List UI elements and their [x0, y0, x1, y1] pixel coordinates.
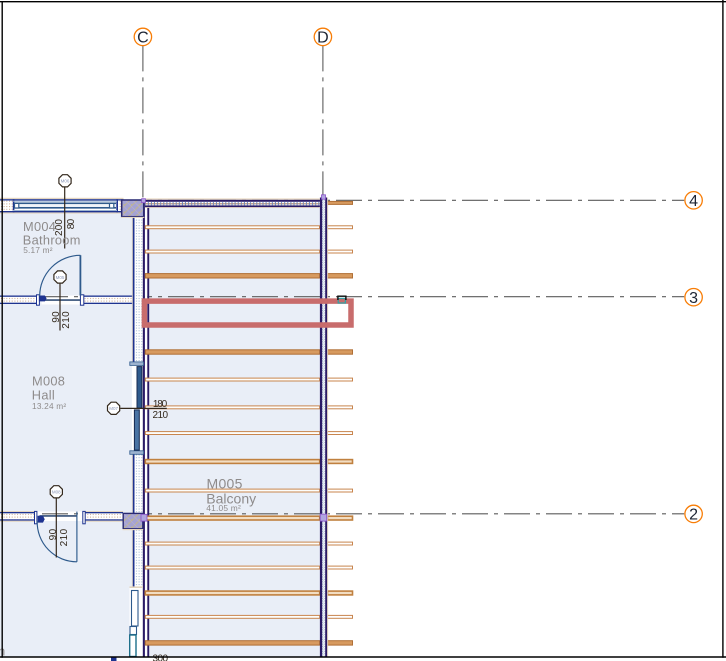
svg-text:210: 210 — [153, 410, 169, 421]
svg-text:210: 210 — [61, 311, 72, 329]
svg-text:4: 4 — [689, 193, 698, 210]
svg-text:80: 80 — [66, 218, 77, 229]
svg-text:M005: M005 — [207, 476, 243, 492]
svg-text:41.05 m²: 41.05 m² — [206, 503, 241, 513]
svg-text:D: D — [317, 30, 329, 47]
svg-text:Hall: Hall — [32, 387, 55, 402]
svg-text:M008: M008 — [32, 373, 65, 388]
svg-text:M06: M06 — [61, 179, 70, 184]
svg-text:90: 90 — [48, 528, 59, 540]
svg-text:M07: M07 — [109, 406, 118, 411]
svg-text:2: 2 — [689, 507, 698, 524]
svg-text:3: 3 — [689, 290, 698, 307]
svg-text:210: 210 — [59, 528, 70, 546]
svg-text:5.17 m²: 5.17 m² — [23, 245, 53, 255]
svg-text:C: C — [137, 30, 149, 47]
svg-text:180: 180 — [153, 399, 168, 410]
svg-text:M004: M004 — [23, 219, 56, 234]
svg-text:M05: M05 — [56, 275, 65, 280]
svg-text:M08: M08 — [52, 490, 61, 495]
svg-text:13.24 m²: 13.24 m² — [32, 401, 66, 411]
